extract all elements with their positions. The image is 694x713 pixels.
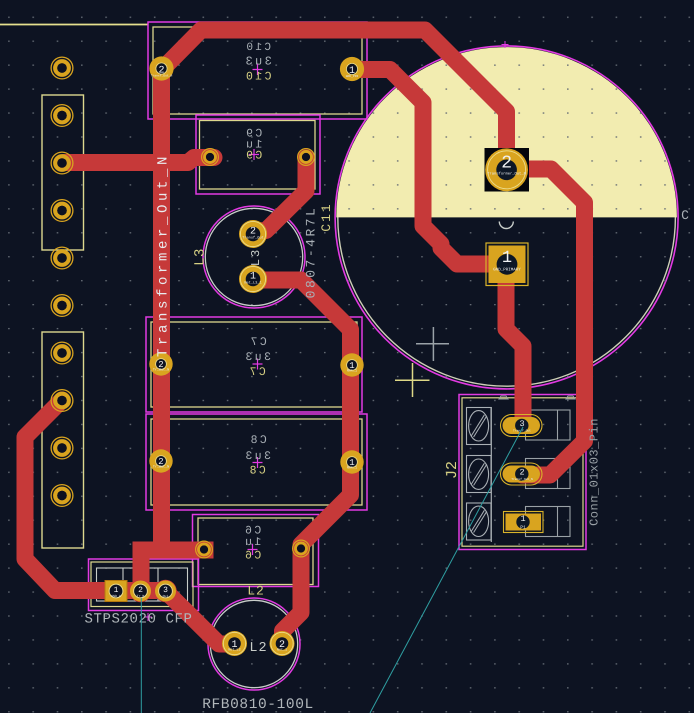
svg-text:2: 2 — [501, 154, 512, 174]
svg-text:3: 3 — [519, 419, 524, 429]
svg-text:Net_1: Net_1 — [347, 466, 357, 471]
svg-text:C10: C10 — [244, 42, 271, 54]
svg-text:1: 1 — [520, 514, 525, 524]
svg-text:Transf_Out_N: Transf_Out_N — [151, 74, 173, 78]
svg-text:Transf_Out: Transf_Out — [242, 236, 264, 241]
svg-text:C7: C7 — [247, 366, 266, 379]
svg-text:Net_L2: Net_L2 — [228, 648, 240, 653]
svg-text:Tr_N: Tr_N — [137, 594, 145, 598]
svg-text:J2: J2 — [444, 461, 461, 479]
svg-text:0807-4R7L: 0807-4R7L — [304, 206, 319, 299]
svg-text:1: 1 — [502, 249, 512, 268]
svg-text:C10: C10 — [244, 71, 272, 84]
svg-text:Tr_Out_N: Tr_Out_N — [153, 368, 169, 373]
svg-text:3u3: 3u3 — [243, 351, 271, 364]
svg-text:L2: L2 — [247, 584, 265, 599]
svg-text:Transformer_Out_N: Transformer_Out_N — [487, 172, 526, 177]
svg-text:Net_1: Net_1 — [277, 648, 287, 653]
svg-text:C: C — [681, 208, 689, 223]
svg-text:L3: L3 — [193, 248, 209, 266]
svg-text:C11: C11 — [319, 202, 334, 231]
svg-text:L2: L2 — [249, 641, 267, 656]
svg-text:C8: C8 — [248, 434, 267, 447]
svg-text:GND_PRI: GND_PRI — [346, 75, 359, 78]
svg-text:Out: Out — [163, 594, 169, 598]
svg-text:Conn_01x03_Pin: Conn_01x03_Pin — [588, 418, 602, 526]
svg-text:C8: C8 — [247, 465, 266, 478]
svg-text:STPS2020 CFP: STPS2020 CFP — [84, 612, 192, 628]
svg-text:Tr_Out_N: Tr_Out_N — [153, 465, 169, 470]
svg-text:RFB0810-100L: RFB0810-100L — [202, 697, 314, 713]
svg-text:1u: 1u — [243, 536, 262, 549]
svg-text:P1: P1 — [520, 525, 526, 531]
svg-text:C7: C7 — [248, 336, 267, 349]
svg-text:3u3: 3u3 — [243, 450, 271, 463]
svg-text:Transformer_Out_N: Transformer_Out_N — [156, 153, 172, 357]
svg-text:3u3: 3u3 — [243, 55, 272, 69]
svg-text:Net_1: Net_1 — [347, 369, 357, 374]
svg-text:GND_A: GND_A — [111, 594, 121, 598]
svg-text:C9: C9 — [244, 150, 263, 163]
svg-text:C6: C6 — [243, 550, 262, 563]
svg-text:L3: L3 — [249, 248, 263, 266]
svg-text:2: 2 — [519, 468, 524, 478]
svg-text:Transf_Out_N: Transf_Out_N — [511, 477, 533, 481]
svg-text:Net_L3_1: Net_L3_1 — [244, 281, 261, 286]
svg-text:GND_PRIMARY: GND_PRIMARY — [493, 268, 521, 273]
